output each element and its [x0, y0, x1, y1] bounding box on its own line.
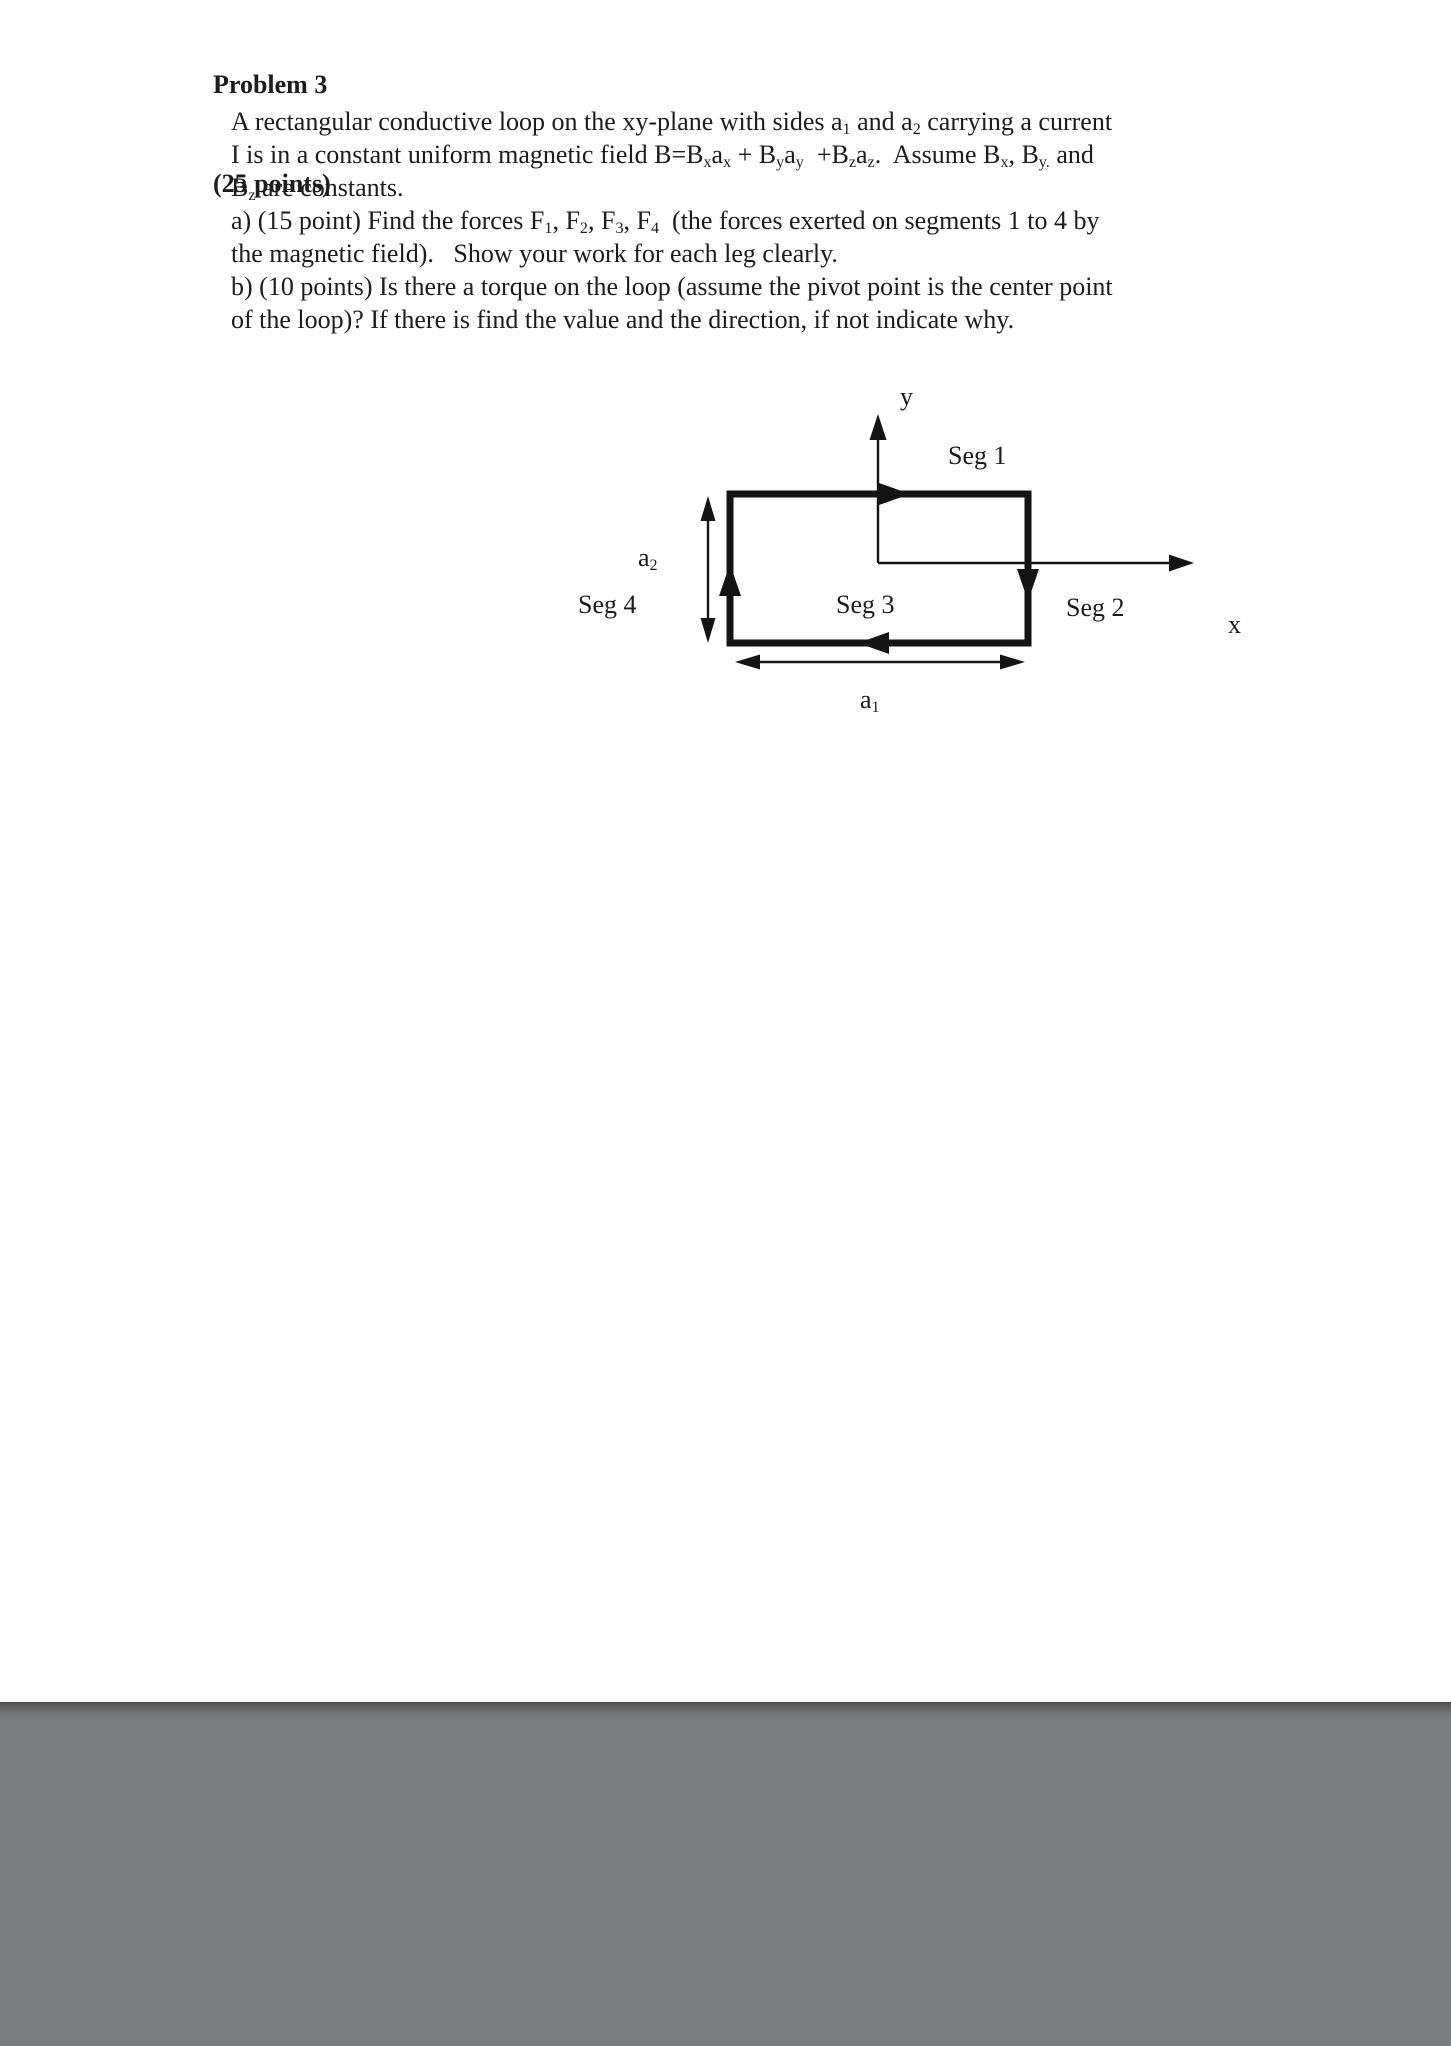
y-axis-label: y [900, 383, 913, 411]
x-axis-label: x [1228, 611, 1241, 639]
loop-diagram: y x Seg 1 Seg 2 Seg 3 Seg 4 a2 a1 [560, 380, 1280, 750]
document-page: Problem 3 (25 points) A rectangular cond… [0, 0, 1451, 2046]
a2-dimension-arrowhead-bottom-icon [701, 618, 716, 643]
segment-2-label: Seg 2 [1066, 594, 1125, 622]
current-arrow-seg1-icon [879, 483, 910, 505]
current-arrow-seg4-icon [719, 564, 741, 596]
a1-dimension-arrowhead-right-icon [1000, 655, 1025, 670]
a1-dimension-label: a1 [860, 686, 880, 714]
segment-3-label: Seg 3 [836, 591, 895, 619]
a2-dimension-label: a2 [638, 544, 658, 572]
statement-line: b) (10 points) Is there a torque on the … [231, 270, 1113, 303]
statement-line: a) (15 point) Find the forces F1, F2, F3… [231, 204, 1113, 237]
problem-statement: A rectangular conductive loop on the xy-… [231, 105, 1113, 336]
statement-line: A rectangular conductive loop on the xy-… [231, 105, 1113, 138]
y-axis-arrowhead-icon [870, 414, 887, 440]
segment-1-label: Seg 1 [948, 442, 1007, 470]
gray-footer-area [0, 1702, 1451, 2046]
current-arrow-seg2-icon [1017, 569, 1039, 601]
statement-line: the magnetic field). Show your work for … [231, 237, 1113, 270]
segment-4-label: Seg 4 [578, 591, 637, 619]
loop-figure [560, 380, 1280, 750]
a1-dimension-arrowhead-left-icon [735, 655, 760, 670]
x-axis-arrowhead-icon [1169, 555, 1194, 572]
a2-dimension-arrowhead-top-icon [701, 496, 716, 521]
problem-number: Problem 3 [213, 68, 331, 101]
statement-line: of the loop)? If there is find the value… [231, 303, 1113, 336]
statement-line: I is in a constant uniform magnetic fiel… [231, 138, 1113, 171]
statement-line: Bz are constants. [231, 171, 1113, 204]
current-arrow-seg3-icon [858, 632, 889, 654]
